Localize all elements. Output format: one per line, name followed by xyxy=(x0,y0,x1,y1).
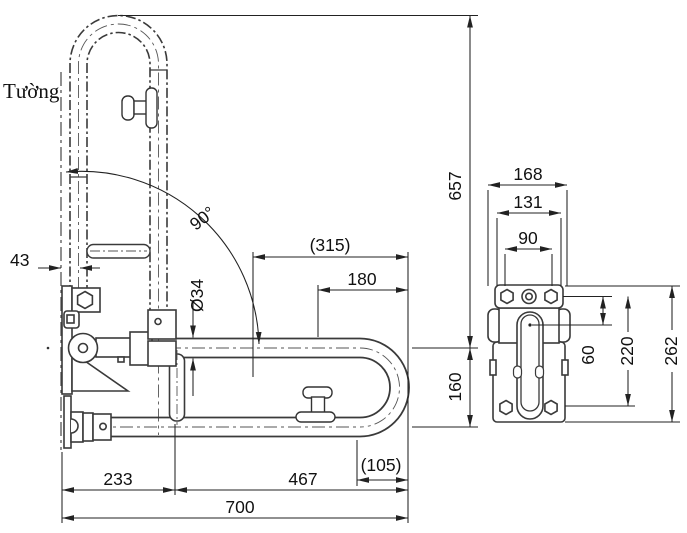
pivot-ring-inner xyxy=(526,293,532,299)
dim-160-label: 160 xyxy=(445,372,465,401)
phantom-cross-rung xyxy=(87,245,150,259)
end-bend-inner xyxy=(360,358,390,418)
dim-43-label: 43 xyxy=(10,250,29,270)
grab-bar-technical-drawing: Tường 43 Ø34 90° 657 160 (315) 180 (105)… xyxy=(0,0,687,533)
pivot-axle-hole xyxy=(79,344,88,353)
dim-220-label: 220 xyxy=(617,336,637,365)
dim-467-label: 467 xyxy=(288,469,317,489)
engineering-drawing-page: Tường 43 Ø34 90° 657 160 (315) 180 (105)… xyxy=(0,0,687,533)
hex-bolt xyxy=(78,292,93,309)
dim-180-label: 180 xyxy=(347,269,376,289)
dim-105-label: (105) xyxy=(361,455,402,475)
wall-label: Tường xyxy=(3,79,60,103)
dim-315-label: (315) xyxy=(310,235,351,255)
handle-cap xyxy=(122,96,134,120)
dim-131-label: 131 xyxy=(513,192,542,212)
side-notch xyxy=(562,360,568,375)
ext-lines-90 xyxy=(505,254,552,286)
tube-sleeve-lower xyxy=(148,341,176,366)
sleeve-screw xyxy=(155,319,161,325)
slot-hole xyxy=(536,366,544,378)
bracket-notch xyxy=(71,419,78,433)
paper-holder-handle xyxy=(296,387,335,422)
hex-bolt xyxy=(501,290,513,304)
hex-bolt xyxy=(545,290,557,304)
hex-bolt xyxy=(500,401,512,415)
dim-233-label: 233 xyxy=(103,469,132,489)
dim-657-label: 657 xyxy=(445,171,465,200)
wall-plate xyxy=(64,396,71,448)
dim-262-label: 262 xyxy=(661,336,681,365)
dim-700-label: 700 xyxy=(225,497,254,517)
clamp-screw xyxy=(100,423,106,429)
angle-label: 90° xyxy=(186,202,219,234)
end-bend-outer xyxy=(360,339,409,437)
pivot-axis-dot xyxy=(528,323,531,326)
phantom-tube-outer-edge xyxy=(70,16,167,311)
bracket-block xyxy=(83,413,93,441)
handle-stem xyxy=(312,397,325,413)
dim-34-label: Ø34 xyxy=(187,279,207,312)
dim-90-label: 90 xyxy=(518,228,538,248)
handle-base xyxy=(146,88,157,128)
wall-reference-line xyxy=(47,72,61,450)
phantom-t-handle xyxy=(122,88,157,128)
side-notch xyxy=(490,360,496,375)
dim-168-label: 168 xyxy=(513,164,542,184)
handle-stem xyxy=(134,101,147,114)
dim-60-label: 60 xyxy=(578,345,598,365)
phantom-flipped-bar xyxy=(70,16,167,311)
side-view-mounting-plate xyxy=(488,285,570,422)
hex-bolt xyxy=(545,401,557,415)
handle-base xyxy=(296,412,335,422)
arm-tab xyxy=(118,357,124,362)
tube-sleeve-upper xyxy=(148,310,176,339)
clip-detail xyxy=(67,315,74,323)
lower-bracket xyxy=(64,396,111,448)
pivot-center-mark xyxy=(47,347,50,350)
slot-hole xyxy=(514,366,522,378)
